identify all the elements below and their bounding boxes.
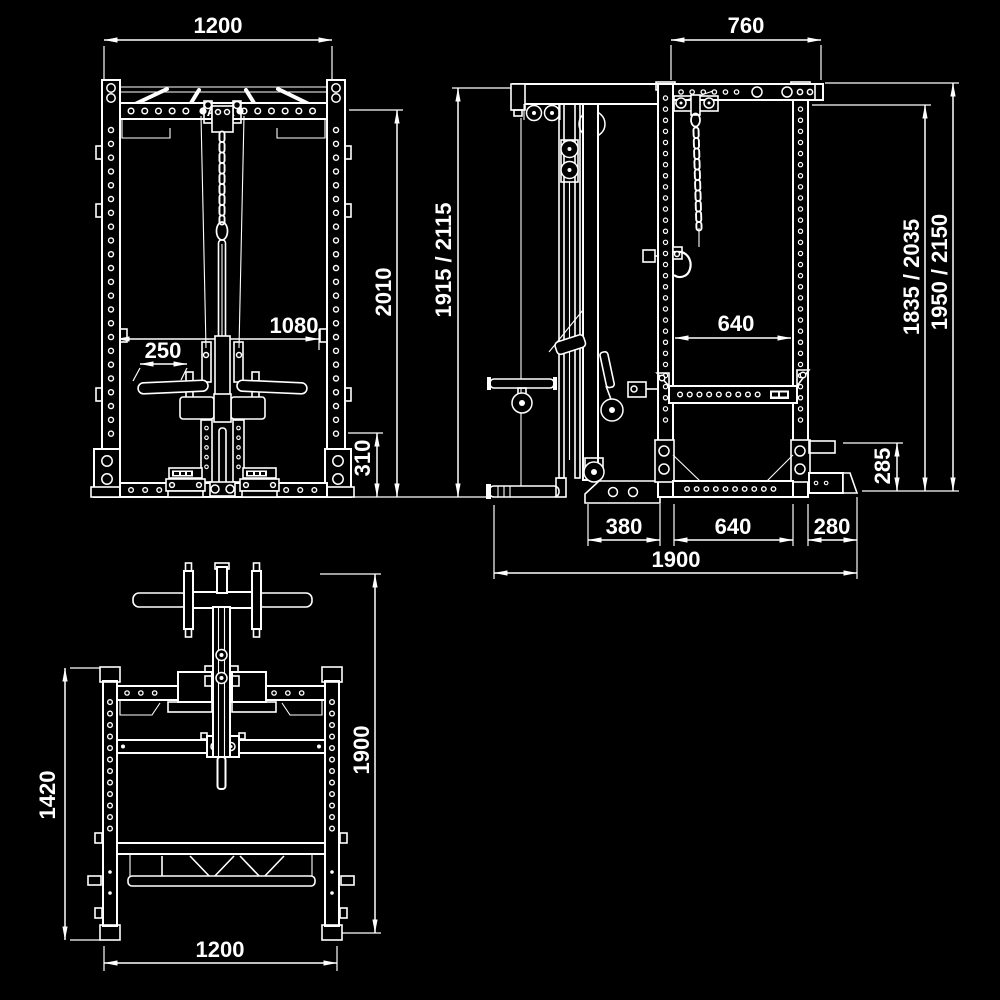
- side-chain: [696, 130, 699, 247]
- front-dimensions: 1200 2010 1915 / 2115 1080 250 310: [104, 13, 513, 497]
- technical-drawing: 1200 2010 1915 / 2115 1080 250 310: [0, 0, 1000, 1000]
- dim-side-rear-overhang: 280: [814, 514, 851, 539]
- dim-top-width: 1200: [196, 937, 245, 962]
- lat-chain: [217, 134, 228, 240]
- dim-front-inner-width: 1080: [270, 313, 319, 338]
- side-bottom-frame: [673, 455, 793, 497]
- top-geometry: [88, 563, 354, 940]
- dim-front-grip-length: 250: [145, 338, 182, 363]
- lat-tower: [486, 84, 663, 503]
- front-right-post: [320, 80, 354, 497]
- dim-side-rear-inner-height: 1835 / 2035: [899, 219, 924, 335]
- dim-top-side-rail-depth: 1420: [35, 771, 60, 820]
- adjust-lever: [599, 351, 623, 421]
- front-geometry: ATX: [91, 80, 354, 497]
- j-hook: [673, 247, 691, 277]
- side-view: 760 1835 / 2035 1950 / 2150 285 640 380 …: [486, 13, 959, 579]
- seat-grip: [487, 377, 557, 413]
- dim-side-bottom-inner-depth: 640: [715, 514, 752, 539]
- band-peg-lower: [628, 382, 658, 397]
- dim-side-rear-outer-height: 1950 / 2150: [927, 214, 952, 330]
- top-view: 1420 1900 1200: [35, 563, 381, 971]
- side-geometry: [486, 82, 857, 503]
- front-view: 1200 2010 1915 / 2115 1080 250 310: [91, 13, 513, 497]
- carriage-base: [210, 482, 235, 496]
- dim-side-top-depth: 760: [728, 13, 765, 38]
- diagram-stage: 1200 2010 1915 / 2115 1080 250 310: [0, 0, 1000, 1000]
- safety-bar: [657, 370, 809, 403]
- side-rear-post: [791, 82, 810, 497]
- dim-side-total-depth: 1900: [652, 547, 701, 572]
- dim-side-rear-foot-height: 285: [870, 448, 895, 485]
- front-left-post: [91, 80, 127, 497]
- dim-front-top-width: 1200: [194, 13, 243, 38]
- dim-side-total-height: 1915 / 2115: [431, 202, 456, 317]
- logo-dot-left: [199, 107, 206, 114]
- top-left-post: [88, 667, 120, 940]
- side-front-post: [655, 82, 675, 497]
- weight-holder-right: [240, 468, 279, 497]
- dim-side-front-foot-depth: 380: [606, 514, 643, 539]
- tower-foot: [585, 481, 660, 503]
- top-right-post: [322, 667, 354, 940]
- dim-front-base-height: 310: [350, 440, 375, 477]
- thigh-pads: [180, 394, 265, 422]
- rear-foot: [809, 441, 857, 493]
- foot-bar: [486, 478, 566, 499]
- dim-front-inner-height: 2010: [371, 268, 396, 317]
- guide-rod: [219, 240, 226, 350]
- weight-holder-left: [166, 468, 205, 497]
- dim-top-total-depth: 1900: [349, 726, 374, 775]
- side-trolley: [674, 95, 718, 127]
- band-peg-upper: [643, 250, 658, 262]
- carriage-columns: [201, 420, 244, 486]
- top-lower-rail: [117, 843, 325, 886]
- dim-side-safety-bar-span: 640: [718, 311, 755, 336]
